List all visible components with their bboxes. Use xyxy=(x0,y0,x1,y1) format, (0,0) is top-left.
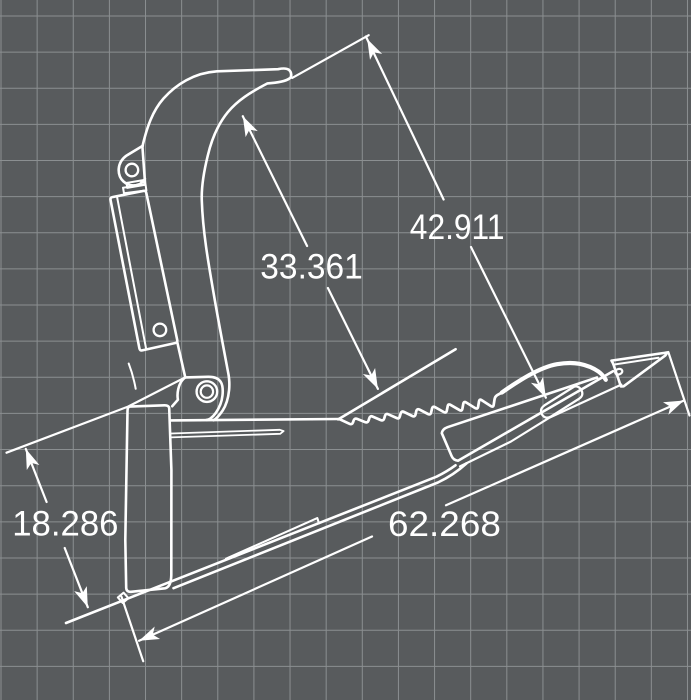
svg-text:33.361: 33.361 xyxy=(260,247,363,287)
svg-text:18.286: 18.286 xyxy=(12,504,118,544)
svg-text:62.268: 62.268 xyxy=(388,504,501,544)
svg-text:42.911: 42.911 xyxy=(410,207,505,247)
